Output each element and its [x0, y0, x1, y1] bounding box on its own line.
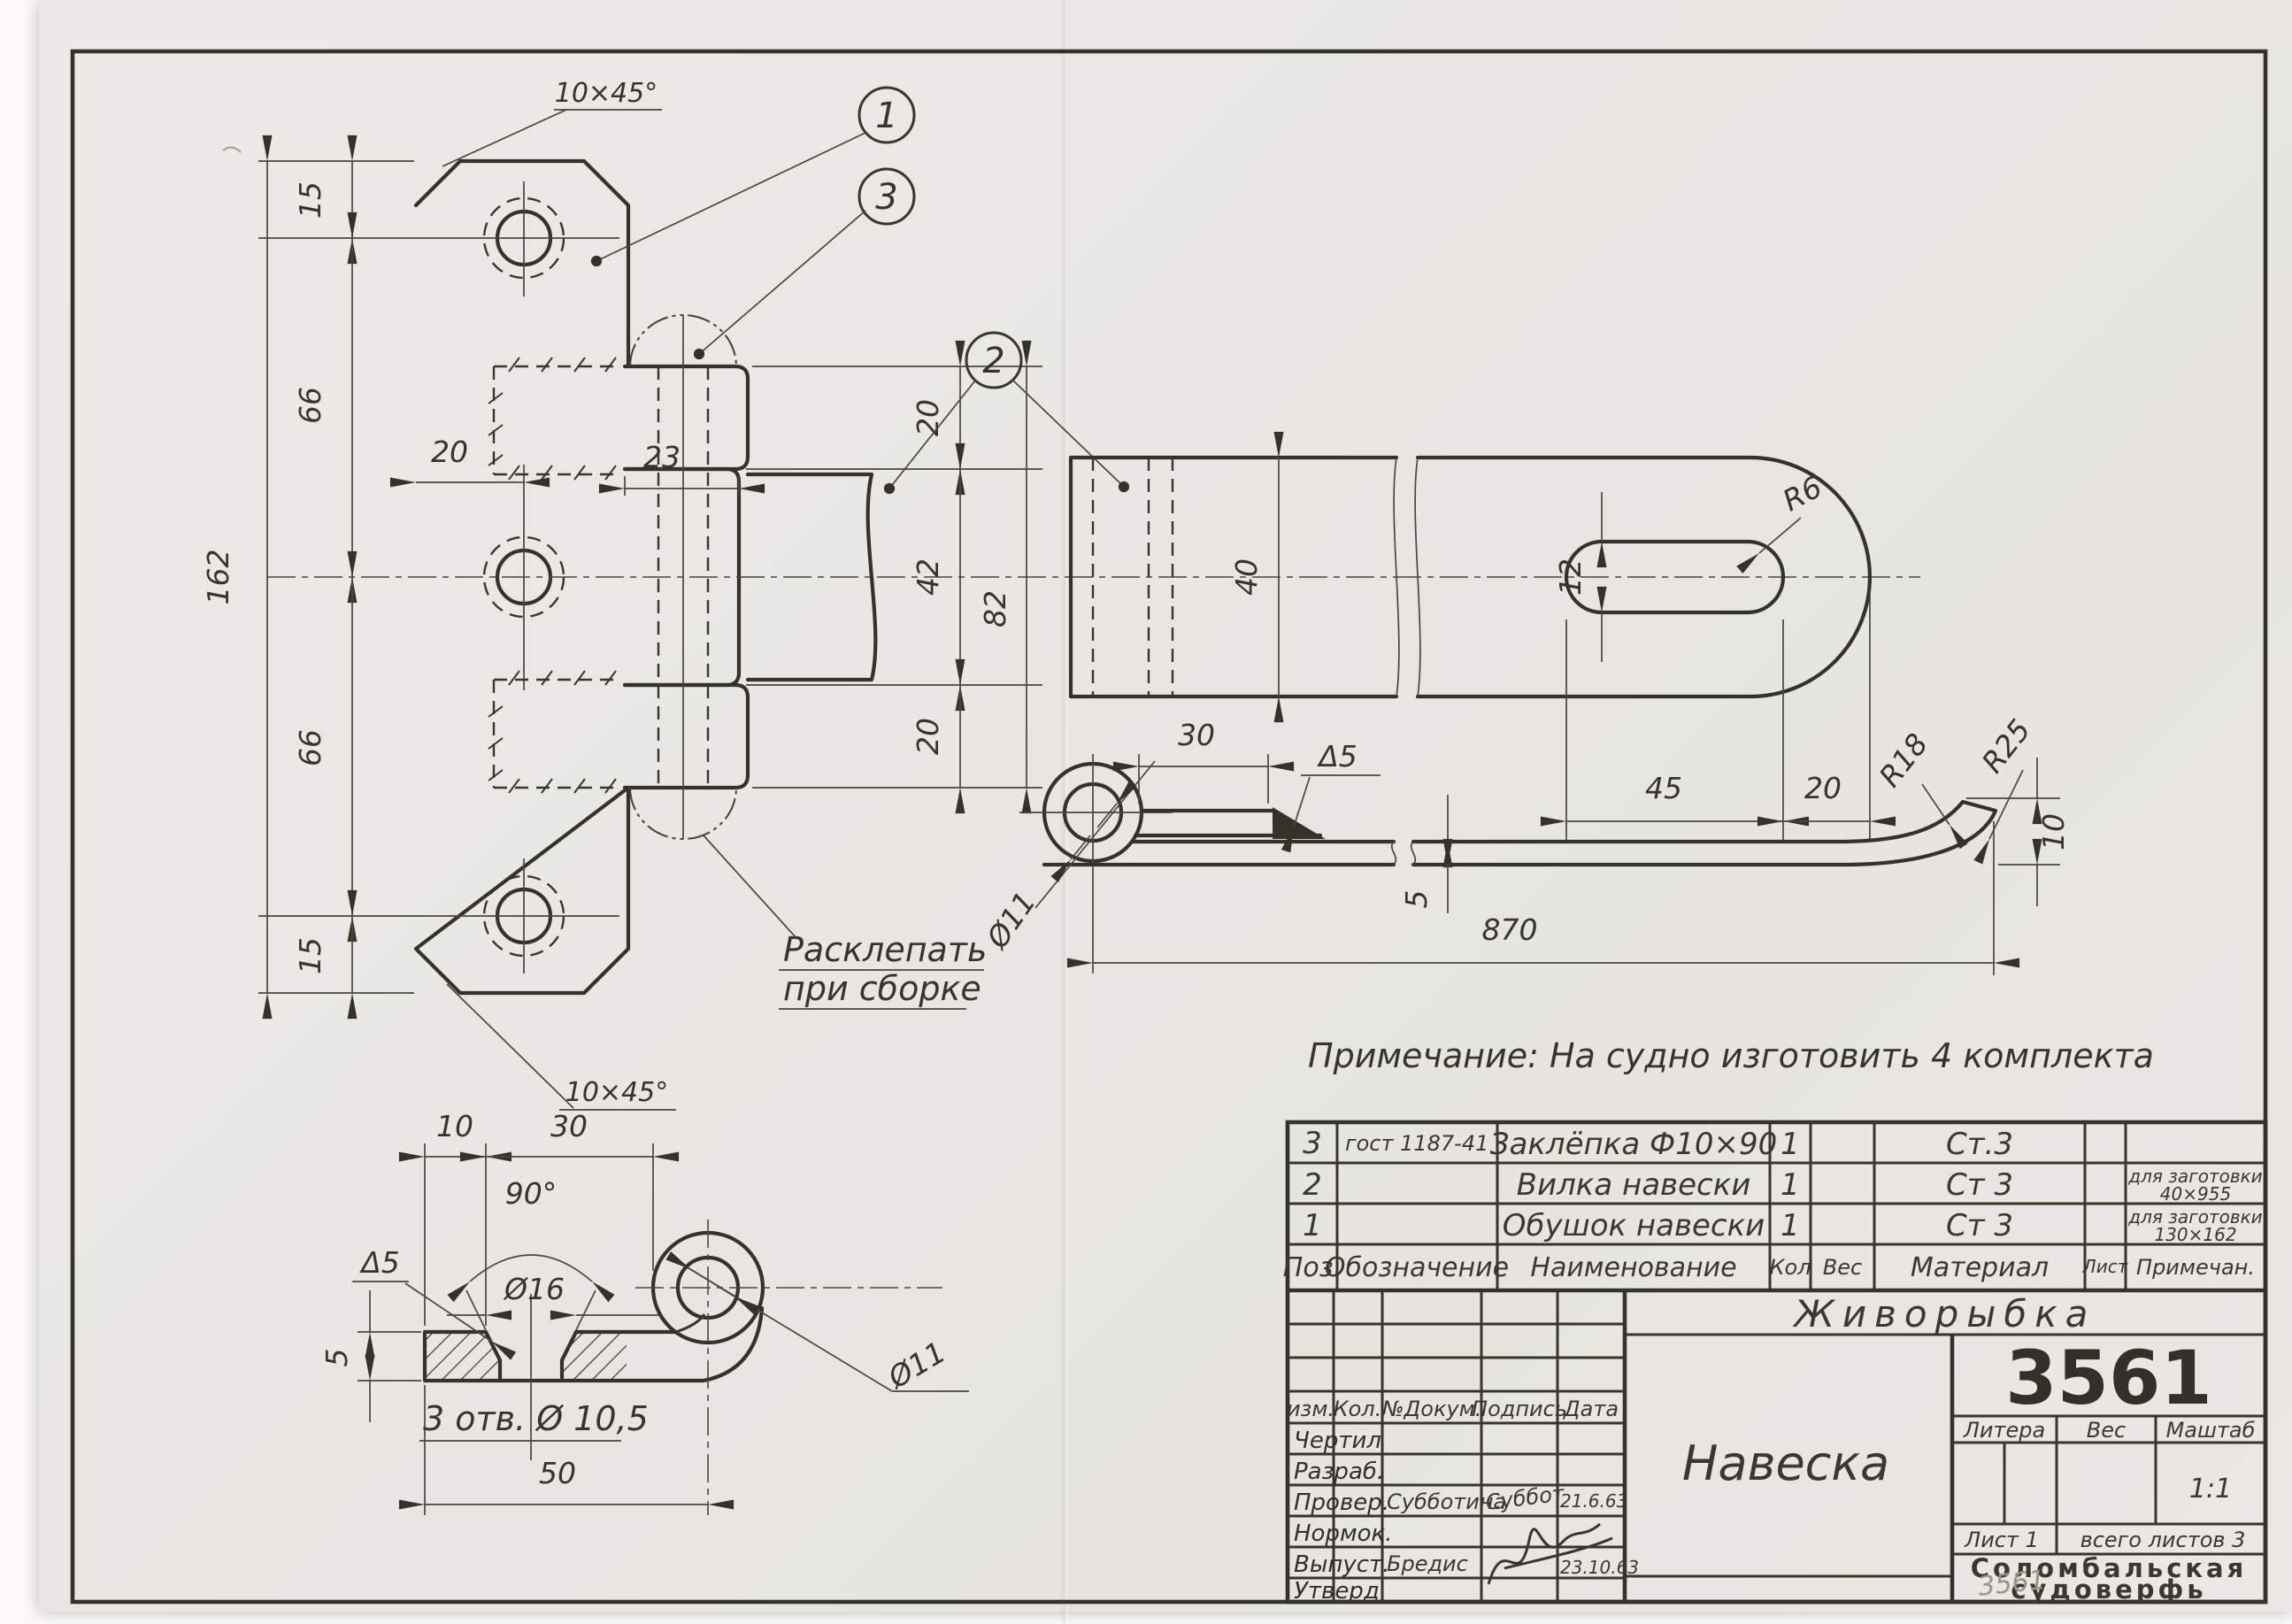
vypust-date: 23.10.63: [1560, 1557, 1639, 1578]
hook-dims: 30 Δ5 R18 R25 10 5 870: [979, 712, 2071, 975]
row2-qty: 1: [1781, 1167, 1800, 1203]
col-qty: Кол: [1769, 1255, 1811, 1280]
front-dims-mid: 20 23: [416, 435, 739, 496]
sheet-frame: [73, 51, 2265, 1602]
row1-material: Ст 3: [1946, 1208, 2013, 1243]
section-view: 10 30 90° Ø16 Δ5 5 3 отв. Ø 10,5 50: [319, 1109, 969, 1515]
col-name: Наименование: [1530, 1252, 1736, 1283]
scan-mark: [223, 147, 241, 152]
title-block-text: Живорыбка Навеска 3561 Литера Вес Маштаб…: [1287, 1292, 2256, 1605]
doc-title: Навеска: [1682, 1435, 1889, 1491]
rivet-note: Расклепать при сборке: [704, 835, 987, 1009]
sheets-total: всего листов 3: [2080, 1528, 2246, 1552]
dim-r25: R25: [1975, 712, 2038, 779]
dim-82: 82: [978, 590, 1012, 627]
svg-text:3: 3: [875, 177, 897, 218]
row3-pos: 3: [1303, 1126, 1322, 1161]
sig-h-izm: изм.: [1287, 1397, 1334, 1421]
col-designation: Обозначение: [1325, 1252, 1509, 1283]
strap-outline: [1071, 458, 1870, 697]
prover-date: 21.6.63: [1560, 1490, 1627, 1512]
sig-row-chertil: Чертил: [1294, 1428, 1381, 1454]
dim-90deg: 90°: [505, 1176, 558, 1211]
row2-pos: 2: [1303, 1167, 1322, 1203]
sig-h-kol: Кол.: [1334, 1397, 1382, 1421]
sig-h-doc: №Докум.: [1381, 1397, 1482, 1421]
dim-20-ktop: 20: [911, 399, 945, 436]
front-view: 162 15 66 66 15 20 23: [201, 78, 1124, 1110]
fork-hidden-top: [488, 358, 619, 480]
svg-text:1: 1: [875, 96, 897, 136]
weld-mark-hook: Δ5: [1316, 739, 1358, 774]
sig-row-vypust: Выпуст.: [1294, 1551, 1389, 1578]
scale-label: Маштаб: [2166, 1418, 2256, 1443]
dim-d11-hook: Ø11: [979, 885, 1042, 956]
knuckle-bottom: [625, 685, 748, 788]
strap-dims: 40 12 R6 45 20: [1229, 458, 1870, 841]
litera-label: Литера: [1963, 1418, 2045, 1443]
weld-mark-sec: Δ5: [358, 1245, 400, 1280]
row1-note2: 130×162: [2154, 1224, 2236, 1245]
dim-20-kbottom: 20: [911, 718, 945, 755]
dim-66-top: 66: [293, 387, 327, 424]
dim-66-bottom: 66: [293, 729, 327, 766]
hook-break: [1392, 842, 1416, 865]
holes-note: 3 отв. Ø 10,5: [423, 1399, 649, 1438]
svg-text:2: 2: [982, 341, 1004, 381]
dim-20-offset: 20: [431, 435, 468, 469]
dim-10: 10: [2036, 813, 2071, 850]
col-note: Примечан.: [2136, 1255, 2255, 1280]
rivet-note-line1: Расклепать: [783, 930, 987, 969]
chamfer-top-label: 10×45°: [555, 78, 658, 109]
dim-15-top: 15: [293, 181, 327, 219]
dim-12: 12: [1553, 558, 1588, 596]
row3-qty: 1: [1781, 1127, 1800, 1162]
dim-d16: Ø16: [503, 1272, 565, 1306]
dim-40: 40: [1229, 558, 1264, 596]
row2-note2: 40×955: [2160, 1183, 2231, 1205]
sheet-label: Лист 1: [1964, 1528, 2039, 1552]
rivet-note-line2: при сборке: [783, 969, 981, 1008]
row3-material: Ст.3: [1946, 1127, 2013, 1162]
project-name: Живорыбка: [1792, 1292, 2096, 1335]
doc-number: 3561: [2005, 1335, 2212, 1421]
dim-20-end: 20: [1804, 771, 1842, 805]
col-material: Материал: [1911, 1252, 2049, 1283]
dim-15-bottom: 15: [293, 937, 327, 974]
hook-side-view: 30 Δ5 R18 R25 10 5 870: [979, 712, 2071, 975]
dim-5-hook: 5: [1399, 890, 1434, 909]
sig-h-date: Дата: [1563, 1397, 1619, 1421]
col-weight: Вес: [1823, 1255, 1862, 1280]
vypust-name: Бредис: [1387, 1551, 1468, 1576]
row3-name: Заклёпка Ф10×90: [1490, 1127, 1778, 1162]
fork-hidden-bottom: [488, 671, 619, 793]
row2-material: Ст 3: [1946, 1167, 2013, 1203]
dim-30-sec: 30: [550, 1109, 588, 1143]
balloon-1: 1: [596, 88, 914, 261]
strap-top-view: 40 12 R6 45 20: [1071, 458, 1870, 841]
drawing-sheet: 162 15 66 66 15 20 23: [0, 0, 2292, 1624]
scale-value: 1:1: [2189, 1474, 2232, 1505]
sig-row-razrab: Разраб.: [1294, 1459, 1384, 1485]
col-sheet: Лист: [2082, 1256, 2129, 1277]
row3-designation: гост 1187-41: [1345, 1131, 1488, 1156]
chamfer-bottom-label: 10×45°: [565, 1077, 668, 1108]
sig-row-prover: Провер.: [1294, 1489, 1389, 1516]
hook-end: [1845, 802, 1996, 865]
sig-row-normok: Нормок.: [1294, 1520, 1392, 1547]
chamfer-notes: 10×45° 10×45°: [442, 78, 676, 1110]
row1-name: Обушок навески: [1503, 1208, 1765, 1243]
row2-name: Вилка навески: [1517, 1167, 1751, 1203]
dim-23: 23: [643, 440, 681, 474]
dim-162: 162: [201, 550, 235, 605]
dim-45: 45: [1645, 771, 1682, 805]
drawing-canvas: 162 15 66 66 15 20 23: [0, 0, 2292, 1624]
dim-r18: R18: [1873, 727, 1935, 793]
strap-bar: [1044, 842, 1850, 865]
row1-pos: 1: [1303, 1208, 1322, 1243]
dim-10-sec: 10: [436, 1109, 473, 1143]
dim-30-hook: 30: [1178, 718, 1215, 752]
dim-5-sec: 5: [319, 1349, 354, 1367]
sig-h-sign: Подпись: [1472, 1397, 1567, 1421]
dim-50: 50: [539, 1456, 576, 1490]
dim-d11-sec: Ø11: [881, 1335, 951, 1396]
weight-label: Вес: [2087, 1418, 2126, 1443]
section-dims: 10 30 90° Ø16 Δ5 5 3 отв. Ø 10,5 50: [319, 1109, 969, 1515]
dim-870: 870: [1482, 912, 1538, 947]
row1-qty: 1: [1781, 1208, 1800, 1243]
sig-row-utverd: Утверд.: [1294, 1578, 1387, 1605]
dim-r6: R6: [1777, 469, 1827, 518]
general-note: Примечание: На судно изготовить 4 компле…: [1308, 1036, 2154, 1075]
